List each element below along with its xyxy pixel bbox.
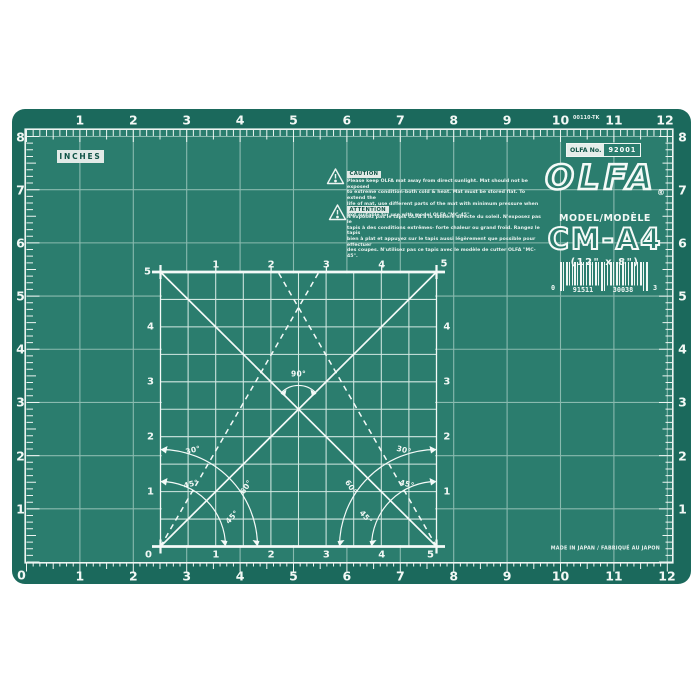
- item-number-badge: OLFA No. 92001: [566, 143, 641, 157]
- brand-panel: OLFA® MODEL/MODÈLE CM-A4 (12" x 8"): [545, 160, 665, 268]
- caution-title: CAUTION: [347, 171, 381, 178]
- item-number-prefix: OLFA No.: [567, 144, 604, 156]
- warning-icon: [330, 205, 346, 220]
- barcode-digit: 3: [653, 284, 657, 292]
- caution-text-line: Please keep OLFA mat away from direct su…: [347, 179, 543, 190]
- attention-text-line: tapis à des conditions extrêmes- forte c…: [347, 226, 543, 237]
- barcode-digit: 91511: [573, 286, 593, 294]
- item-number-value: 92001: [604, 144, 640, 156]
- barcode-digit: 0: [551, 284, 555, 292]
- mat-size: (12" x 8"): [545, 257, 665, 268]
- attention-text-line: bien à plat et appuyez sur le tapis auss…: [347, 237, 543, 248]
- inches-unit-badge: INCHES: [57, 150, 104, 163]
- made-in-label: MADE IN JAPAN / FABRIQUÉ AU JAPON: [551, 547, 660, 552]
- attention-text-line: N'exposez pas le tapis OLFA à la lumière…: [347, 215, 543, 226]
- barcode-digit: 30038: [613, 286, 633, 294]
- warning-icon: [328, 169, 344, 184]
- registered-mark: ®: [657, 188, 665, 197]
- cutting-mat-photo: INCHES 00110-TK OLFA No. 92001 CAUTION P…: [0, 0, 700, 700]
- attention-text-line: des coupes. N'utilisez pas ce tapis avec…: [347, 248, 543, 259]
- olfa-logo: OLFA®: [545, 160, 665, 211]
- mat-markings: [0, 0, 700, 700]
- model-name: CM-A4: [545, 225, 665, 254]
- plate-number: 00110-TK: [573, 116, 600, 121]
- attention-title: ATTENTION: [347, 206, 389, 213]
